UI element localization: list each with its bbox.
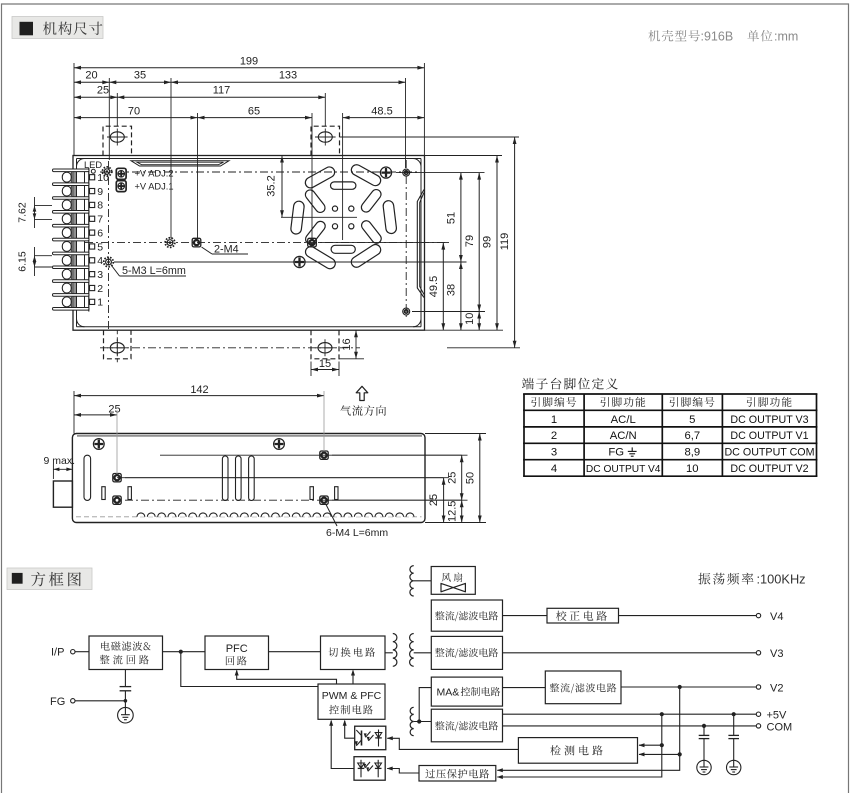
svg-text:16: 16: [341, 338, 353, 350]
svg-text:3: 3: [551, 447, 557, 459]
svg-text:6,7: 6,7: [684, 430, 700, 442]
svg-text:LED: LED: [84, 160, 102, 170]
svg-text:4: 4: [97, 255, 103, 267]
svg-text:5-M3 L=6mm: 5-M3 L=6mm: [122, 265, 186, 277]
svg-text:5: 5: [97, 241, 103, 253]
svg-text:142: 142: [190, 384, 208, 396]
svg-text:117: 117: [213, 85, 231, 97]
svg-text:51: 51: [446, 212, 458, 224]
svg-text:2: 2: [97, 283, 103, 295]
svg-text:1: 1: [97, 297, 103, 309]
svg-text:2-M4: 2-M4: [214, 243, 239, 255]
svg-text:2: 2: [551, 430, 557, 442]
svg-text:7: 7: [97, 214, 103, 226]
svg-text:133: 133: [279, 70, 297, 82]
svg-text:25: 25: [428, 494, 440, 506]
svg-text:V2: V2: [770, 682, 783, 694]
svg-text:6-M4 L=6mm: 6-M4 L=6mm: [326, 527, 388, 539]
svg-text:I/P: I/P: [51, 646, 64, 658]
svg-text:5: 5: [689, 414, 695, 426]
svg-text:MA&: MA&: [437, 686, 460, 698]
svg-text:70: 70: [128, 106, 140, 118]
svg-text:AC/L: AC/L: [611, 414, 636, 426]
svg-text:1: 1: [551, 414, 557, 426]
svg-text:8: 8: [97, 200, 103, 212]
svg-text:6.15: 6.15: [17, 251, 29, 272]
svg-text:4: 4: [551, 463, 557, 475]
svg-text:35.2: 35.2: [266, 175, 278, 196]
svg-text:FG: FG: [50, 696, 65, 708]
svg-text:PWM & PFC: PWM & PFC: [322, 690, 382, 702]
svg-text:+V ADJ.2: +V ADJ.2: [135, 169, 174, 179]
svg-text:FG: FG: [608, 447, 624, 459]
svg-text:199: 199: [240, 56, 258, 68]
svg-text:AC/N: AC/N: [610, 430, 637, 442]
svg-text:25: 25: [97, 85, 109, 97]
svg-text:8,9: 8,9: [684, 447, 700, 459]
svg-text:PFC: PFC: [226, 643, 248, 655]
svg-text:9: 9: [97, 186, 103, 198]
svg-text:79: 79: [464, 235, 476, 247]
svg-text:DC OUTPUT V1: DC OUTPUT V1: [730, 430, 808, 442]
svg-text:50: 50: [464, 472, 476, 484]
svg-text:10: 10: [686, 463, 699, 475]
svg-text:9 max.: 9 max.: [44, 455, 76, 467]
svg-text:10: 10: [464, 313, 476, 325]
svg-text:12.5: 12.5: [446, 501, 458, 522]
svg-text:DC OUTPUT V2: DC OUTPUT V2: [730, 463, 808, 475]
svg-text:3: 3: [97, 269, 103, 281]
svg-text:35: 35: [134, 70, 146, 82]
svg-text:49.5: 49.5: [428, 276, 440, 297]
svg-text:48.5: 48.5: [371, 106, 392, 118]
svg-text:6: 6: [97, 227, 103, 239]
svg-text:+5V: +5V: [767, 710, 788, 722]
svg-text:DC OUTPUT V4: DC OUTPUT V4: [586, 464, 661, 475]
svg-text:V4: V4: [770, 611, 783, 623]
svg-text:COM: COM: [767, 721, 793, 733]
svg-text:V3: V3: [770, 648, 783, 660]
svg-text:DC OUTPUT COM: DC OUTPUT COM: [724, 447, 814, 459]
svg-text:38: 38: [446, 284, 458, 296]
svg-text:65: 65: [248, 106, 260, 118]
svg-text:25: 25: [446, 472, 458, 484]
svg-text:99: 99: [482, 236, 494, 248]
svg-text::916B: :916B: [701, 30, 734, 44]
svg-text::100KHz: :100KHz: [757, 572, 806, 587]
svg-text:15: 15: [319, 358, 331, 370]
svg-text:DC OUTPUT V3: DC OUTPUT V3: [730, 414, 808, 426]
svg-text::mm: :mm: [774, 30, 798, 44]
svg-text:119: 119: [499, 233, 511, 251]
svg-text:+V ADJ.1: +V ADJ.1: [135, 182, 174, 192]
svg-text:20: 20: [85, 70, 97, 82]
svg-text:7.62: 7.62: [17, 202, 29, 223]
